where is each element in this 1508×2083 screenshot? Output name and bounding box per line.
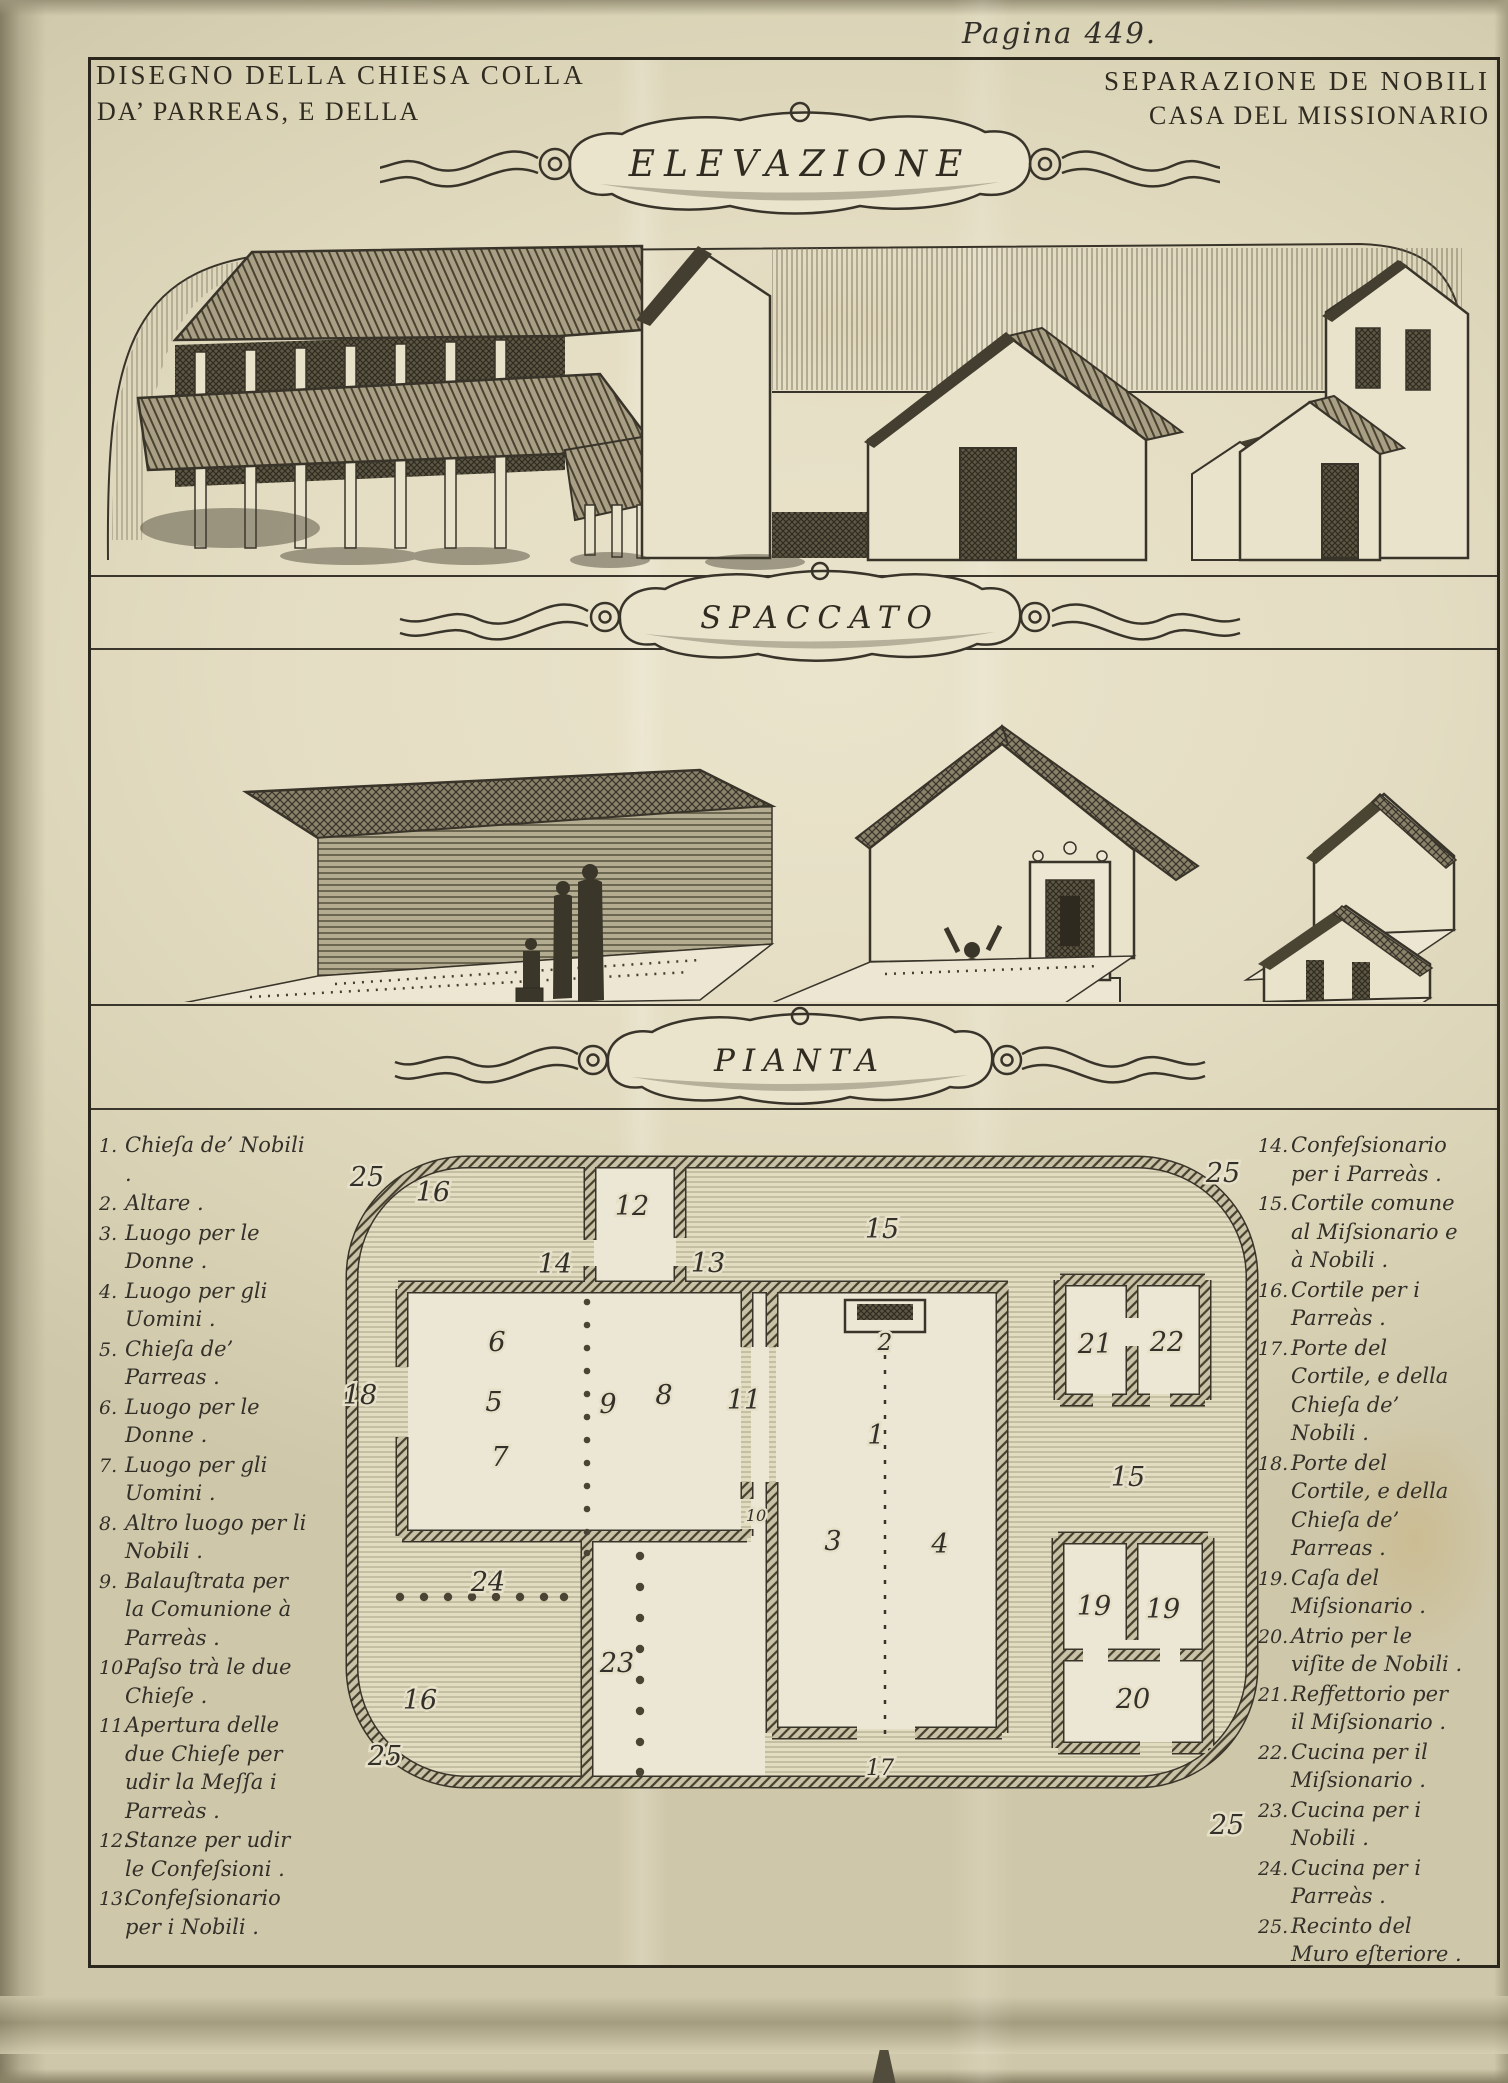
plan-number: 2 [877, 1330, 893, 1356]
legend-item: 17.Porte del Cortile, e della Chieſa de’… [1258, 1334, 1464, 1448]
plan-label: PIANTA [713, 1043, 886, 1079]
legend-item: 16.Cortile per i Parreàs . [1258, 1276, 1464, 1333]
plan-number: 9 [599, 1389, 616, 1420]
legend-item: 5.Chieſa de’ Parreas . [99, 1335, 313, 1392]
plan-number: 18 [343, 1380, 377, 1411]
plan-number: 20 [1115, 1684, 1150, 1715]
legend-item: 13.Confeſsionario per i Nobili . [99, 1884, 313, 1941]
legend-item: 14.Confeſsionario per i Parreàs . [1258, 1131, 1464, 1188]
legend-item: 18.Porte del Cortile, e della Chieſa de’… [1258, 1449, 1464, 1563]
legend-item: 6.Luogo per le Donne . [99, 1393, 313, 1450]
legend-item: 15.Cortile comune al Miſsionario e à Nob… [1258, 1189, 1464, 1275]
legend-item: 7.Luogo per gli Uomini . [99, 1451, 313, 1508]
plan-number: 16 [403, 1685, 437, 1716]
paper-edge-top [0, 0, 1508, 16]
legend-item: 3.Luogo per le Donne . [99, 1219, 313, 1276]
plan-number: 15 [1111, 1462, 1145, 1493]
plan-number: 7 [491, 1442, 509, 1473]
legend-item: 4.Luogo per gli Uomini . [99, 1277, 313, 1334]
plan-number: 19 [1146, 1594, 1180, 1625]
plan-number: 25 [1205, 1158, 1240, 1189]
elevation-label: ELEVAZIONE [628, 144, 972, 185]
title-line2-left: DA’ PARREAS, E DELLA [97, 97, 420, 127]
legend-item: 2.Altare . [99, 1189, 313, 1218]
plan-number: 12 [615, 1191, 649, 1222]
plan-number: 10 [746, 1506, 766, 1525]
elevation-cartouche: ELEVAZIONE [380, 86, 1220, 236]
section-label: SPACCATO [700, 600, 940, 636]
plan-number: 8 [655, 1380, 672, 1411]
plan-number: 17 [866, 1756, 894, 1781]
paper-edge-bottom [0, 2069, 1508, 2083]
legend-item: 21.Reffettorio per il Miſsionario . [1258, 1680, 1464, 1737]
legend-item: 23.Cucina per i Nobili . [1258, 1796, 1464, 1853]
plan-number: 25 [1209, 1810, 1244, 1841]
legend-item: 19.Caſa del Miſsionario . [1258, 1564, 1464, 1621]
plan-number: 16 [416, 1177, 450, 1208]
plan-number: 3 [824, 1526, 841, 1557]
legend-item: 8.Altro luogo per li Nobili . [99, 1509, 313, 1566]
plan-number: 25 [367, 1741, 402, 1772]
plan-number: 25 [349, 1162, 384, 1193]
plan-number: 5 [485, 1387, 502, 1418]
plan-number: 22 [1149, 1327, 1184, 1358]
legend-item: 1.Chieſa de’ Nobili . [99, 1131, 313, 1188]
plan-number: 23 [599, 1648, 634, 1679]
section-cartouche: SPACCATO [380, 555, 1260, 680]
plan-number: 6 [488, 1327, 505, 1358]
page-number: Pagina 449. [962, 16, 1157, 50]
legend-item: 24.Cucina per i Parreàs . [1258, 1854, 1464, 1911]
plan-number: 11 [727, 1385, 761, 1416]
plan-number: 4 [930, 1529, 948, 1560]
open-church-section [158, 770, 772, 1002]
legend-item: 22.Cucina per il Miſsionario . [1258, 1738, 1464, 1795]
plan-number: 14 [538, 1249, 572, 1280]
plan-cartouche: PIANTA [390, 1000, 1210, 1120]
legend-item: 10.Paſso trà le due Chieſe . [99, 1653, 313, 1710]
legend-item: 25.Recinto del Muro eſteriore . [1258, 1912, 1464, 1969]
altar [845, 1300, 925, 1332]
section-drawing [95, 652, 1497, 1002]
engraving-page: Pagina 449. DISEGNO DELLA CHIESA COLLA S… [0, 0, 1508, 2083]
paper-edge-left [0, 0, 46, 2083]
legend-item: 12.Stanze per udir le Confeſsioni . [99, 1826, 313, 1883]
legend-right: 14.Confeſsionario per i Parreàs . 15.Cor… [1258, 1131, 1464, 1970]
plan-number: 1 [867, 1420, 884, 1451]
garden-hedge [772, 512, 868, 558]
altar-chapel-section [698, 726, 1198, 1002]
plan-number: 15 [865, 1214, 899, 1245]
plan-number: 21 [1077, 1329, 1112, 1360]
plan-number: 24 [470, 1567, 505, 1598]
legend-item: 20.Atrio per le viſite de Nobili . [1258, 1622, 1464, 1679]
legend-item: 9.Balauſtrata per la Comunione à Parreàs… [99, 1567, 313, 1653]
legend-left: 1.Chieſa de’ Nobili . 2.Altare . 3.Luogo… [99, 1131, 313, 1942]
plan-number: 19 [1077, 1591, 1111, 1622]
plan-number: 13 [691, 1248, 725, 1279]
mission-houses-section [1196, 794, 1456, 1002]
paper-fold-shadow [0, 1996, 1508, 2054]
legend-item: 11.Apertura delle due Chieſe per udir la… [99, 1711, 313, 1825]
floor-plan-drawing: 25 16 12 14 13 25 15 2 21 22 6 18 5 9 8 … [250, 1128, 1270, 1962]
